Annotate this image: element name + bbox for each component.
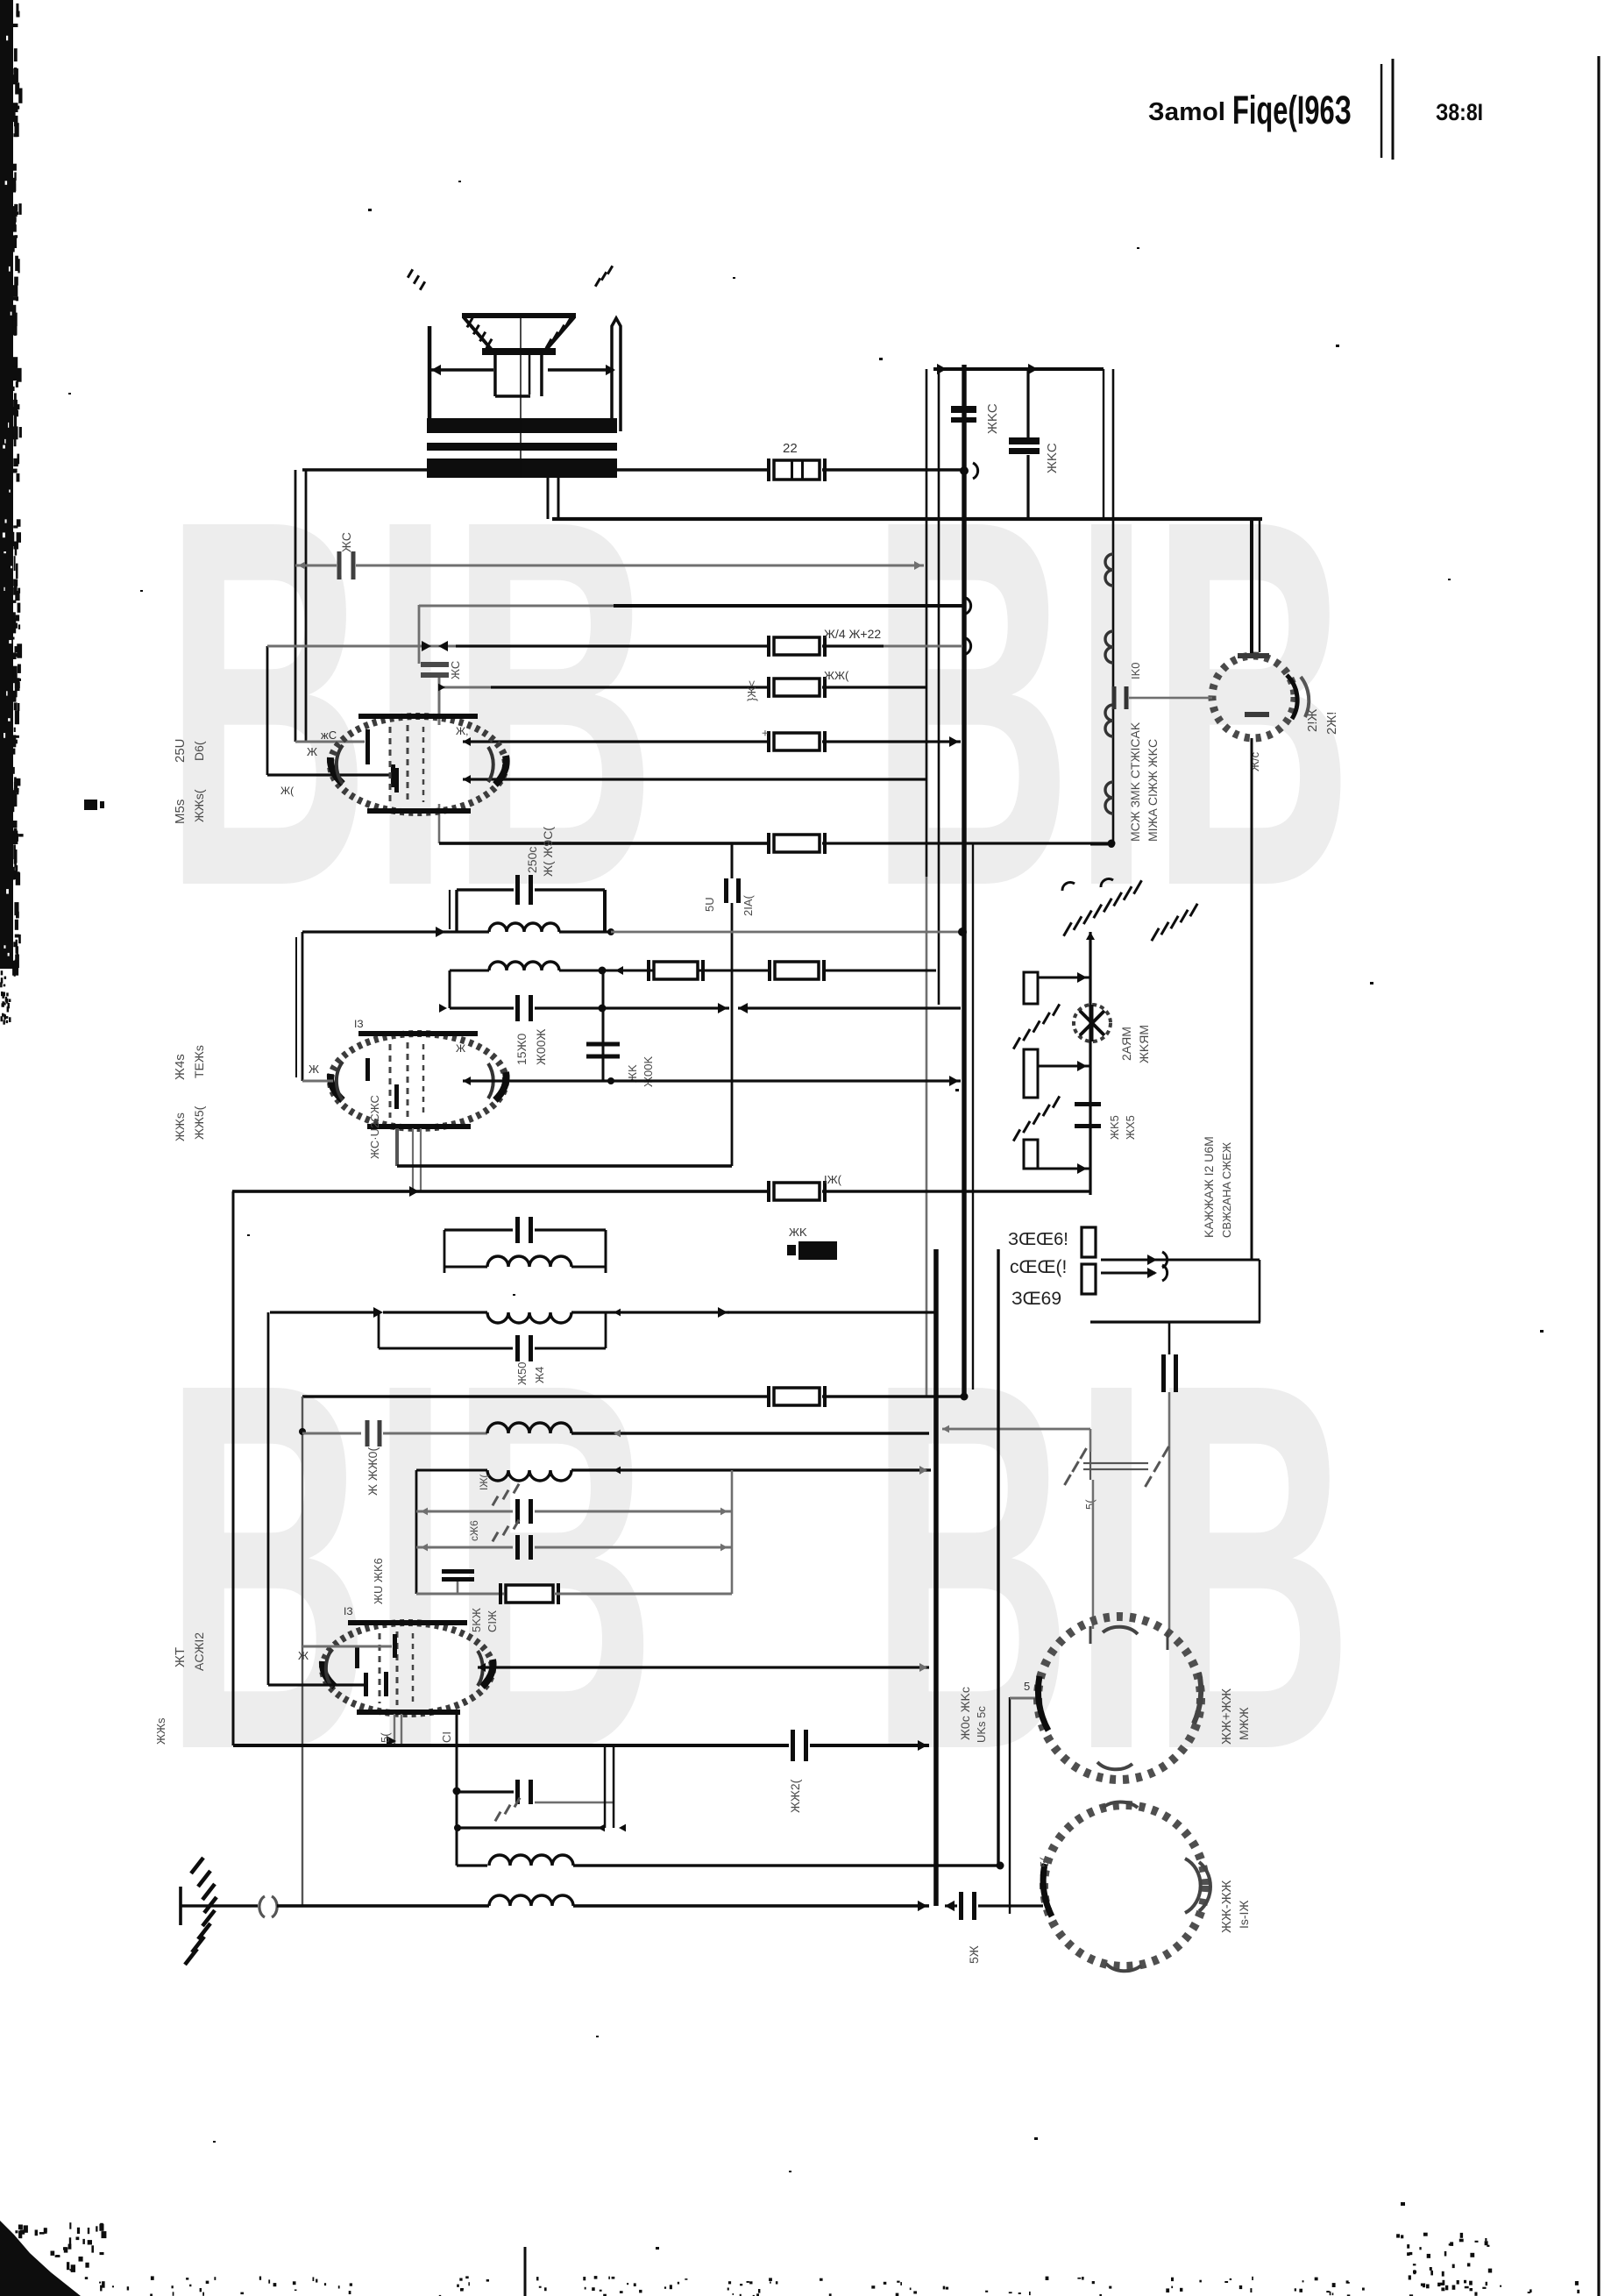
svg-text:ЖЖs: ЖЖs [154, 1717, 167, 1745]
svg-text:ΙЗ: ΙЗ [344, 1605, 353, 1617]
svg-text:СΒЖ2ΑΗΑ СЖΕЖ: СΒЖ2ΑΗΑ СЖΕЖ [1220, 1142, 1233, 1238]
svg-text:ЖЖ+ЖЖ: ЖЖ+ЖЖ [1219, 1688, 1234, 1745]
svg-text:ЖΤ: ЖΤ [173, 1647, 188, 1667]
svg-text:2ΑЯΜ: 2ΑЯΜ [1119, 1027, 1133, 1061]
svg-text:ЖU ЖΚ6: ЖU ЖΚ6 [372, 1558, 385, 1604]
svg-text:5(: 5( [1083, 1499, 1097, 1510]
svg-text:Зamol: Зamol [1148, 98, 1225, 126]
svg-text:ЖЖ(: ЖЖ( [824, 669, 849, 682]
svg-text:ЖЖ-ЖЖ: ЖЖ-ЖЖ [1219, 1880, 1234, 1933]
svg-text:5(: 5( [1038, 1857, 1051, 1867]
svg-text:+: + [758, 729, 771, 736]
svg-text:Ιs-ΙЖ: Ιs-ΙЖ [1237, 1901, 1251, 1929]
svg-text:ЖΚС: ЖΚС [985, 403, 1000, 434]
svg-text:2!Ж: 2!Ж [1305, 708, 1320, 732]
svg-text:cŒŒ(!: cŒŒ(! [1010, 1257, 1067, 1277]
svg-text:5ΚЖ: 5ΚЖ [470, 1608, 483, 1632]
svg-text:ЖΚ5: ЖΚ5 [1108, 1115, 1121, 1140]
svg-text:СΙЖ: СΙЖ [486, 1610, 499, 1632]
svg-text:}Ж<: }Ж< [745, 680, 758, 701]
svg-text:ΙЖ(: ΙЖ( [824, 1173, 842, 1186]
svg-text:Ж/c: Ж/c [1248, 751, 1261, 771]
svg-text:2Ж!: 2Ж! [1324, 712, 1339, 735]
svg-text:ΜΙЖΑ СΙЖЖ ЖΚС: ΜΙЖΑ СΙЖЖ ЖΚС [1146, 739, 1160, 842]
svg-text:Ж4: Ж4 [533, 1367, 546, 1383]
svg-text:ЖΚ: ЖΚ [789, 1226, 807, 1239]
svg-text:ЖЖ5(: ЖЖ5( [192, 1105, 206, 1140]
svg-text:З8:8Ι: З8:8Ι [1436, 99, 1483, 125]
svg-text:2ΙΑ(: 2ΙΑ( [742, 894, 755, 916]
svg-text:ЖЖ2(: ЖЖ2( [788, 1779, 802, 1813]
svg-text:Ж: Ж [309, 1063, 319, 1076]
svg-text:BIB: BIB [869, 411, 1353, 995]
svg-text:ЖС: ЖС [449, 661, 462, 679]
svg-text:Ж(: Ж( [280, 785, 294, 797]
svg-text:Μ5s: Μ5s [173, 800, 188, 824]
svg-text:Ж: Ж [298, 1649, 309, 1662]
svg-text:D6(: D6( [192, 741, 206, 761]
svg-text:ΜЖЖ: ΜЖЖ [1237, 1707, 1251, 1740]
svg-text:cЖ6: cЖ6 [468, 1520, 480, 1541]
svg-text:ΜСЖ ЗΜΚ СΤЖΙСΑΚ: ΜСЖ ЗΜΚ СΤЖΙСΑΚ [1128, 721, 1142, 842]
svg-text:250c: 250c [525, 847, 539, 873]
svg-text:5(: 5( [379, 1732, 392, 1743]
svg-text:ΚΑЖЖΑЖ Ι2 U6Μ: ΚΑЖЖΑЖ Ι2 U6Μ [1202, 1136, 1216, 1238]
svg-text:ЖЖs(: ЖЖs( [192, 789, 206, 822]
svg-text:ЖС: ЖС [339, 532, 353, 552]
svg-text:Fiqe(Ι96З: Fiqe(Ι96З [1232, 88, 1352, 132]
svg-text:СΙ: СΙ [440, 1731, 453, 1743]
svg-text:ЗŒŒ6!: ЗŒŒ6! [1008, 1230, 1068, 1249]
svg-text:5: 5 [1024, 1680, 1030, 1693]
svg-text:ЖΚС: ЖΚС [1045, 443, 1060, 473]
svg-text:15Ж0: 15Ж0 [515, 1034, 529, 1065]
svg-text:Ж ЖЖ0(: Ж ЖЖ0( [366, 1447, 380, 1496]
svg-text:Ж: Ж [456, 1042, 465, 1055]
svg-text:BIB: BIB [869, 1275, 1353, 1859]
svg-text:UΚs 5c: UΚs 5c [975, 1706, 988, 1743]
svg-text:Ж00Ж: Ж00Ж [534, 1029, 548, 1065]
svg-text:Ж: Ж [307, 745, 317, 758]
svg-text:ΙΚ0: ΙΚ0 [1129, 662, 1142, 679]
svg-text:Ж,: Ж, [456, 725, 468, 737]
svg-text:жС: жС [321, 729, 337, 742]
svg-text:Ж00Κ: Ж00Κ [642, 1056, 655, 1087]
svg-text:5U: 5U [703, 897, 716, 912]
svg-text:ЗŒ69: ЗŒ69 [1011, 1289, 1061, 1309]
svg-text:ΤΕЖs: ΤΕЖs [192, 1045, 206, 1078]
svg-text:Ж( Ж9С(: Ж( Ж9С( [541, 827, 555, 877]
svg-text:ΙЗ: ΙЗ [354, 1018, 364, 1030]
svg-text:ЖЖs: ЖЖs [173, 1112, 187, 1141]
svg-text:Ж4s: Ж4s [173, 1054, 188, 1080]
svg-text:22: 22 [783, 441, 798, 456]
svg-text:Ж/4 Ж+22: Ж/4 Ж+22 [824, 627, 881, 641]
svg-text:ЖΚЯΜ: ЖΚЯΜ [1137, 1025, 1151, 1063]
svg-text:Ж0c ЖΚc: Ж0c ЖΚc [958, 1687, 972, 1740]
svg-text:BIB: BIB [164, 411, 657, 995]
svg-text:ЖΧ5: ЖΧ5 [1124, 1115, 1137, 1140]
svg-text:25U: 25U [173, 738, 188, 763]
svg-text:Ж50: Ж50 [515, 1362, 529, 1385]
svg-text:5Ж: 5Ж [967, 1945, 981, 1964]
svg-text:ΑСЖΙ2: ΑСЖΙ2 [192, 1632, 206, 1671]
svg-text:BIB: BIB [164, 1275, 657, 1859]
svg-text:ЖС·U2СЖС: ЖС·U2СЖС [368, 1095, 381, 1159]
svg-text:ΙЖ(: ΙЖ( [478, 1475, 490, 1490]
